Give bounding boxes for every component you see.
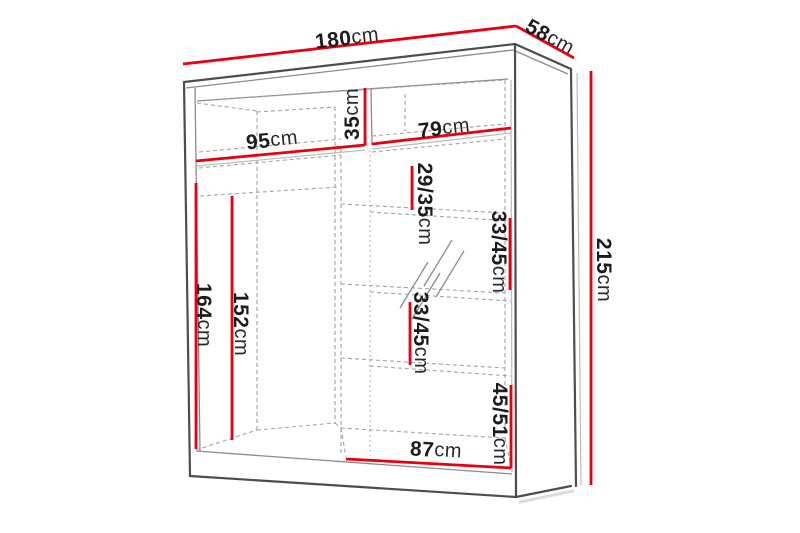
dim-label-left-interior-height: 164cm: [193, 283, 216, 347]
dim-label-bottom-inner-width: 87cm: [409, 437, 462, 463]
dim-label-rail-height: 152cm: [230, 292, 253, 356]
dim-label-left-opening-width: 95cm: [245, 126, 299, 154]
wardrobe-dimension-diagram: 180cm 58cm 215cm 95cm 35cm 79cm 29/35cm …: [0, 0, 800, 533]
dim-label-total-depth: 58cm: [522, 14, 579, 59]
dim-label-shelf-space-top: 29/35cm: [414, 163, 437, 246]
dimension-lines: [183, 26, 591, 485]
dim-label-total-height: 215cm: [593, 238, 616, 302]
dim-label-shelf-space-lower: 33/45cm: [410, 292, 433, 375]
wardrobe-outline: [184, 44, 581, 502]
dimension-labels: 180cm 58cm 215cm 95cm 35cm 79cm 29/35cm …: [193, 14, 616, 465]
dim-label-shelf-space-upper: 33/45cm: [488, 211, 511, 294]
dim-label-total-width: 180cm: [314, 23, 380, 53]
dim-label-shelf-space-bottom: 45/51cm: [489, 383, 512, 466]
diagram-canvas: 180cm 58cm 215cm 95cm 35cm 79cm 29/35cm …: [0, 0, 800, 533]
dim-label-top-shelf-height: 35cm: [341, 88, 364, 140]
